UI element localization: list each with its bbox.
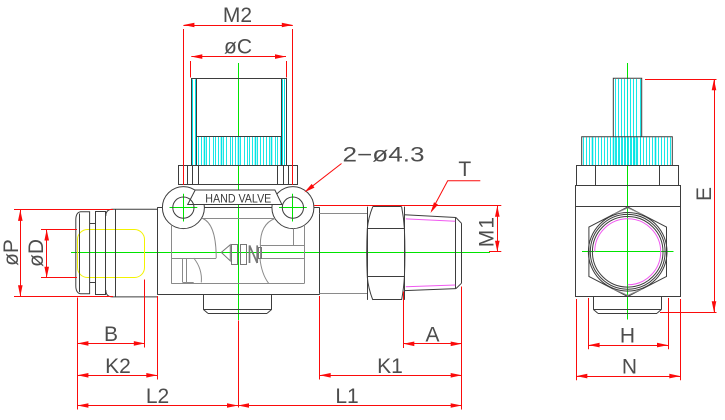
svg-text:L1: L1 (335, 385, 358, 408)
svg-text:H: H (620, 325, 635, 348)
svg-text:T: T (458, 158, 471, 181)
svg-text:2−ø4.3: 2−ø4.3 (343, 144, 425, 167)
svg-text:M1: M1 (476, 216, 499, 248)
svg-text:M2: M2 (223, 4, 252, 27)
svg-text:øC: øC (224, 36, 252, 59)
svg-text:HAND VALVE: HAND VALVE (205, 191, 271, 205)
svg-text:A: A (425, 323, 439, 346)
svg-text:øD: øD (25, 239, 48, 267)
svg-text:K2: K2 (105, 355, 131, 378)
svg-text:øP: øP (0, 239, 23, 266)
svg-text:K1: K1 (377, 355, 403, 378)
svg-text:N: N (622, 356, 637, 379)
svg-text:E: E (693, 187, 716, 201)
svg-text:L2: L2 (146, 385, 169, 408)
svg-text:B: B (104, 323, 118, 346)
